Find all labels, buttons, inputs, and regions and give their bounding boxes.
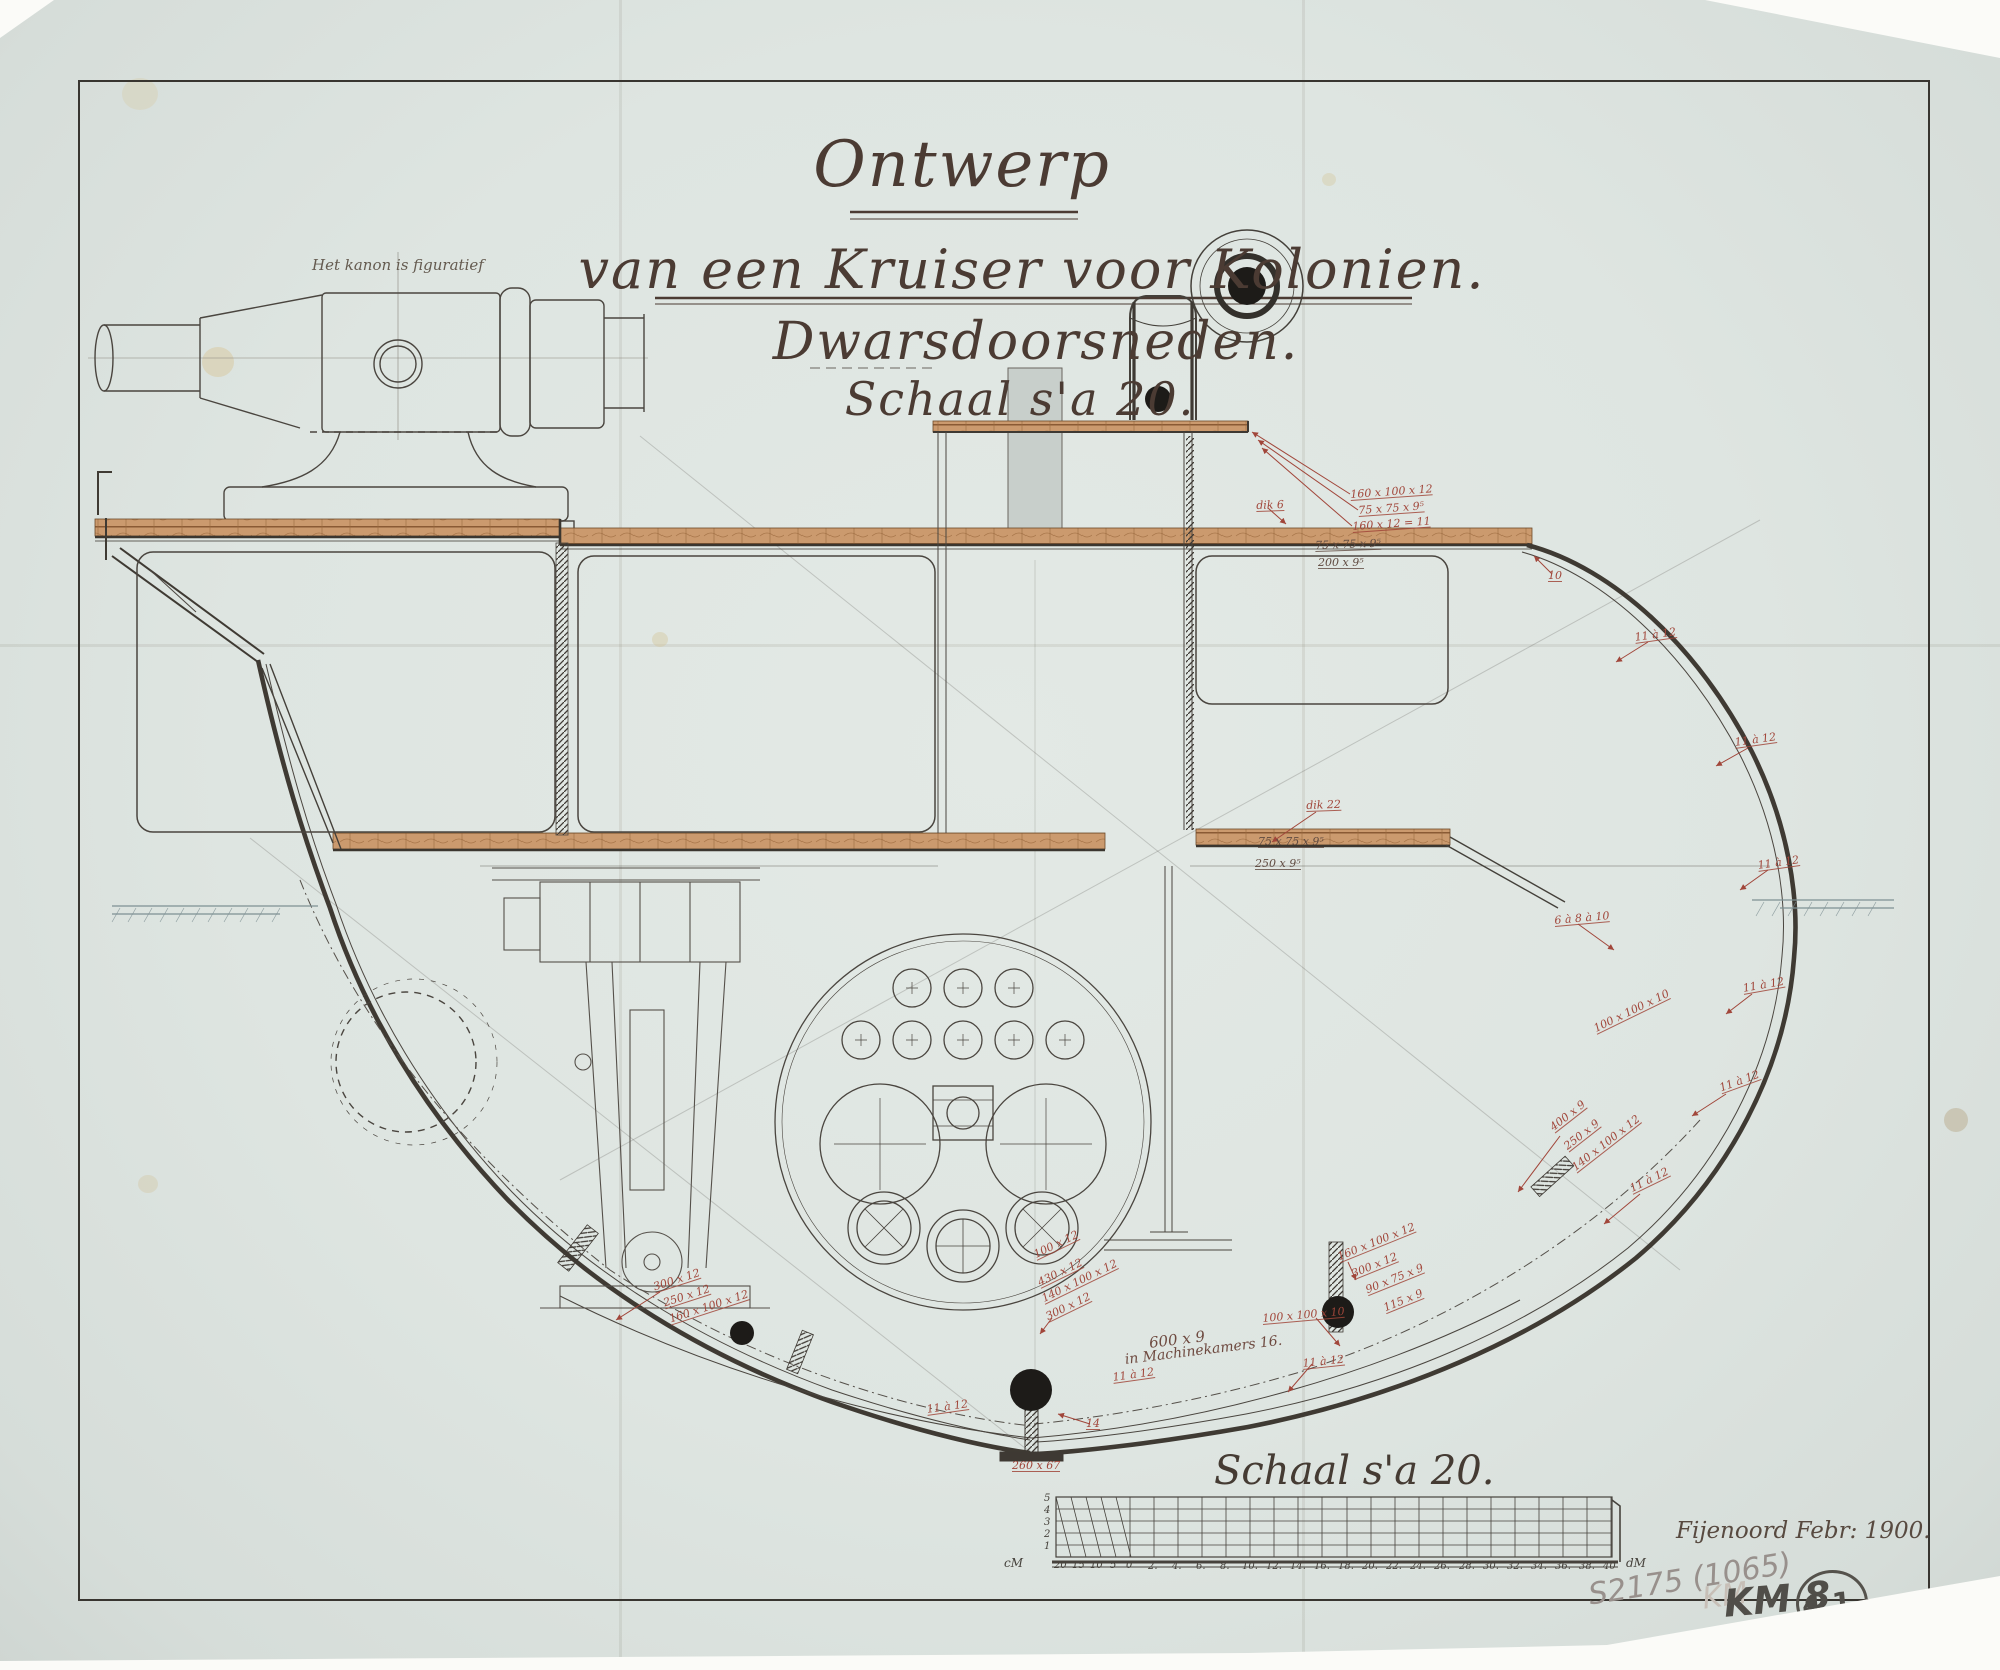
scale-bar-title: Schaal s'a 20. [1214,1448,1494,1494]
circled-number-text: 4.1. [1801,1584,1864,1622]
scale-tick-label: 16. [1314,1562,1330,1572]
scale-tick-label: 20 [1054,1561,1067,1571]
hull-shell [98,472,1795,1454]
dimension-annotation: dik 22 [1306,799,1341,812]
scale-tick-label: 34. [1531,1562,1547,1572]
construction-lines [250,436,1760,1460]
coal-bunker-circle [331,979,497,1145]
dimension-annotation: dik 6 [1256,499,1284,512]
scale-tick-label: 3 [1044,1518,1050,1528]
scale-tick-label: 38. [1579,1562,1595,1572]
scale-tick-label: 10. [1242,1562,1258,1572]
dimension-annotation: 250 x 9⁵ [1255,858,1301,870]
boiler-tubes [842,969,1084,1059]
boiler-face [775,934,1151,1310]
paper-sheet: Ontwerp van een Kruiser voor Kolonien. D… [0,0,2000,1670]
scale-tick-label: 2. [1148,1562,1158,1572]
scale-tick-label: 5 [1110,1561,1116,1571]
gun-profile [88,252,648,529]
scale-tick-label: 4. [1172,1562,1182,1572]
dimension-annotation: 200 x 9⁵ [1318,557,1364,569]
dimension-annotation: 75 x 75 x 9⁵ [1258,836,1324,848]
scale-tick-label: 10 [1090,1561,1103,1571]
ink-blots [730,1296,1354,1411]
scale-tick-label: 36. [1555,1562,1571,1572]
scale-tick-label: 1 [1044,1542,1050,1552]
armoured-deck [262,664,1770,908]
dimension-annotation: 260 x 67 [1012,1460,1060,1472]
scale-tick-label: 30. [1483,1562,1499,1572]
waterline [112,900,1894,922]
scale-tick-label: 40 [1603,1562,1616,1572]
drawing-view-label: Dwarsdoorsneden. [773,312,1300,372]
drawing-scale-label: Schaal s'a 20. [845,372,1196,426]
boiler-manholes [848,1192,1078,1282]
drawing-title: Ontwerp [813,128,1111,202]
scale-tick-label: 14. [1290,1562,1306,1572]
scale-tick-label: cM [1004,1558,1023,1568]
scale-tick-label: 32. [1507,1562,1523,1572]
scale-tick-label: dM [1626,1558,1646,1568]
scale-tick-label: 20. [1362,1562,1378,1572]
pencil-number-8: .8 [1872,1594,1914,1643]
scale-tick-label: 6. [1196,1562,1206,1572]
boiler-furnaces [820,1084,1106,1204]
scale-tick-label: 18. [1338,1562,1354,1572]
dimension-annotation: 75 x 75 x 9⁵ [1315,538,1381,552]
scale-tick-label: 12. [1266,1562,1282,1572]
scale-tick-label: 15 [1072,1561,1085,1571]
signature: Fijenoord Febr: 1900. [1676,1518,1931,1544]
scale-bar [1052,1497,1620,1567]
scale-tick-label: 2 [1044,1530,1050,1540]
scale-tick-label: 4 [1044,1506,1050,1516]
scale-tick-label: 8. [1220,1562,1230,1572]
dimension-annotation: 10 [1548,570,1562,582]
drawing-subtitle: van een Kruiser voor Kolonien. [579,238,1486,301]
scale-tick-label: 22. [1386,1562,1402,1572]
scale-tick-label: 0 [1126,1561,1132,1571]
scanned-drawing-sheet: Ontwerp van een Kruiser voor Kolonien. D… [0,0,2000,1670]
scale-tick-label: 26. [1434,1562,1450,1572]
scale-tick-label: 5 [1044,1494,1050,1504]
cannon-note: Het kanon is figuratief [312,256,484,274]
scale-tick-label: 24. [1410,1562,1426,1572]
scale-tick-label: 28. [1459,1562,1475,1572]
dimension-annotation: 14 [1086,1418,1100,1430]
